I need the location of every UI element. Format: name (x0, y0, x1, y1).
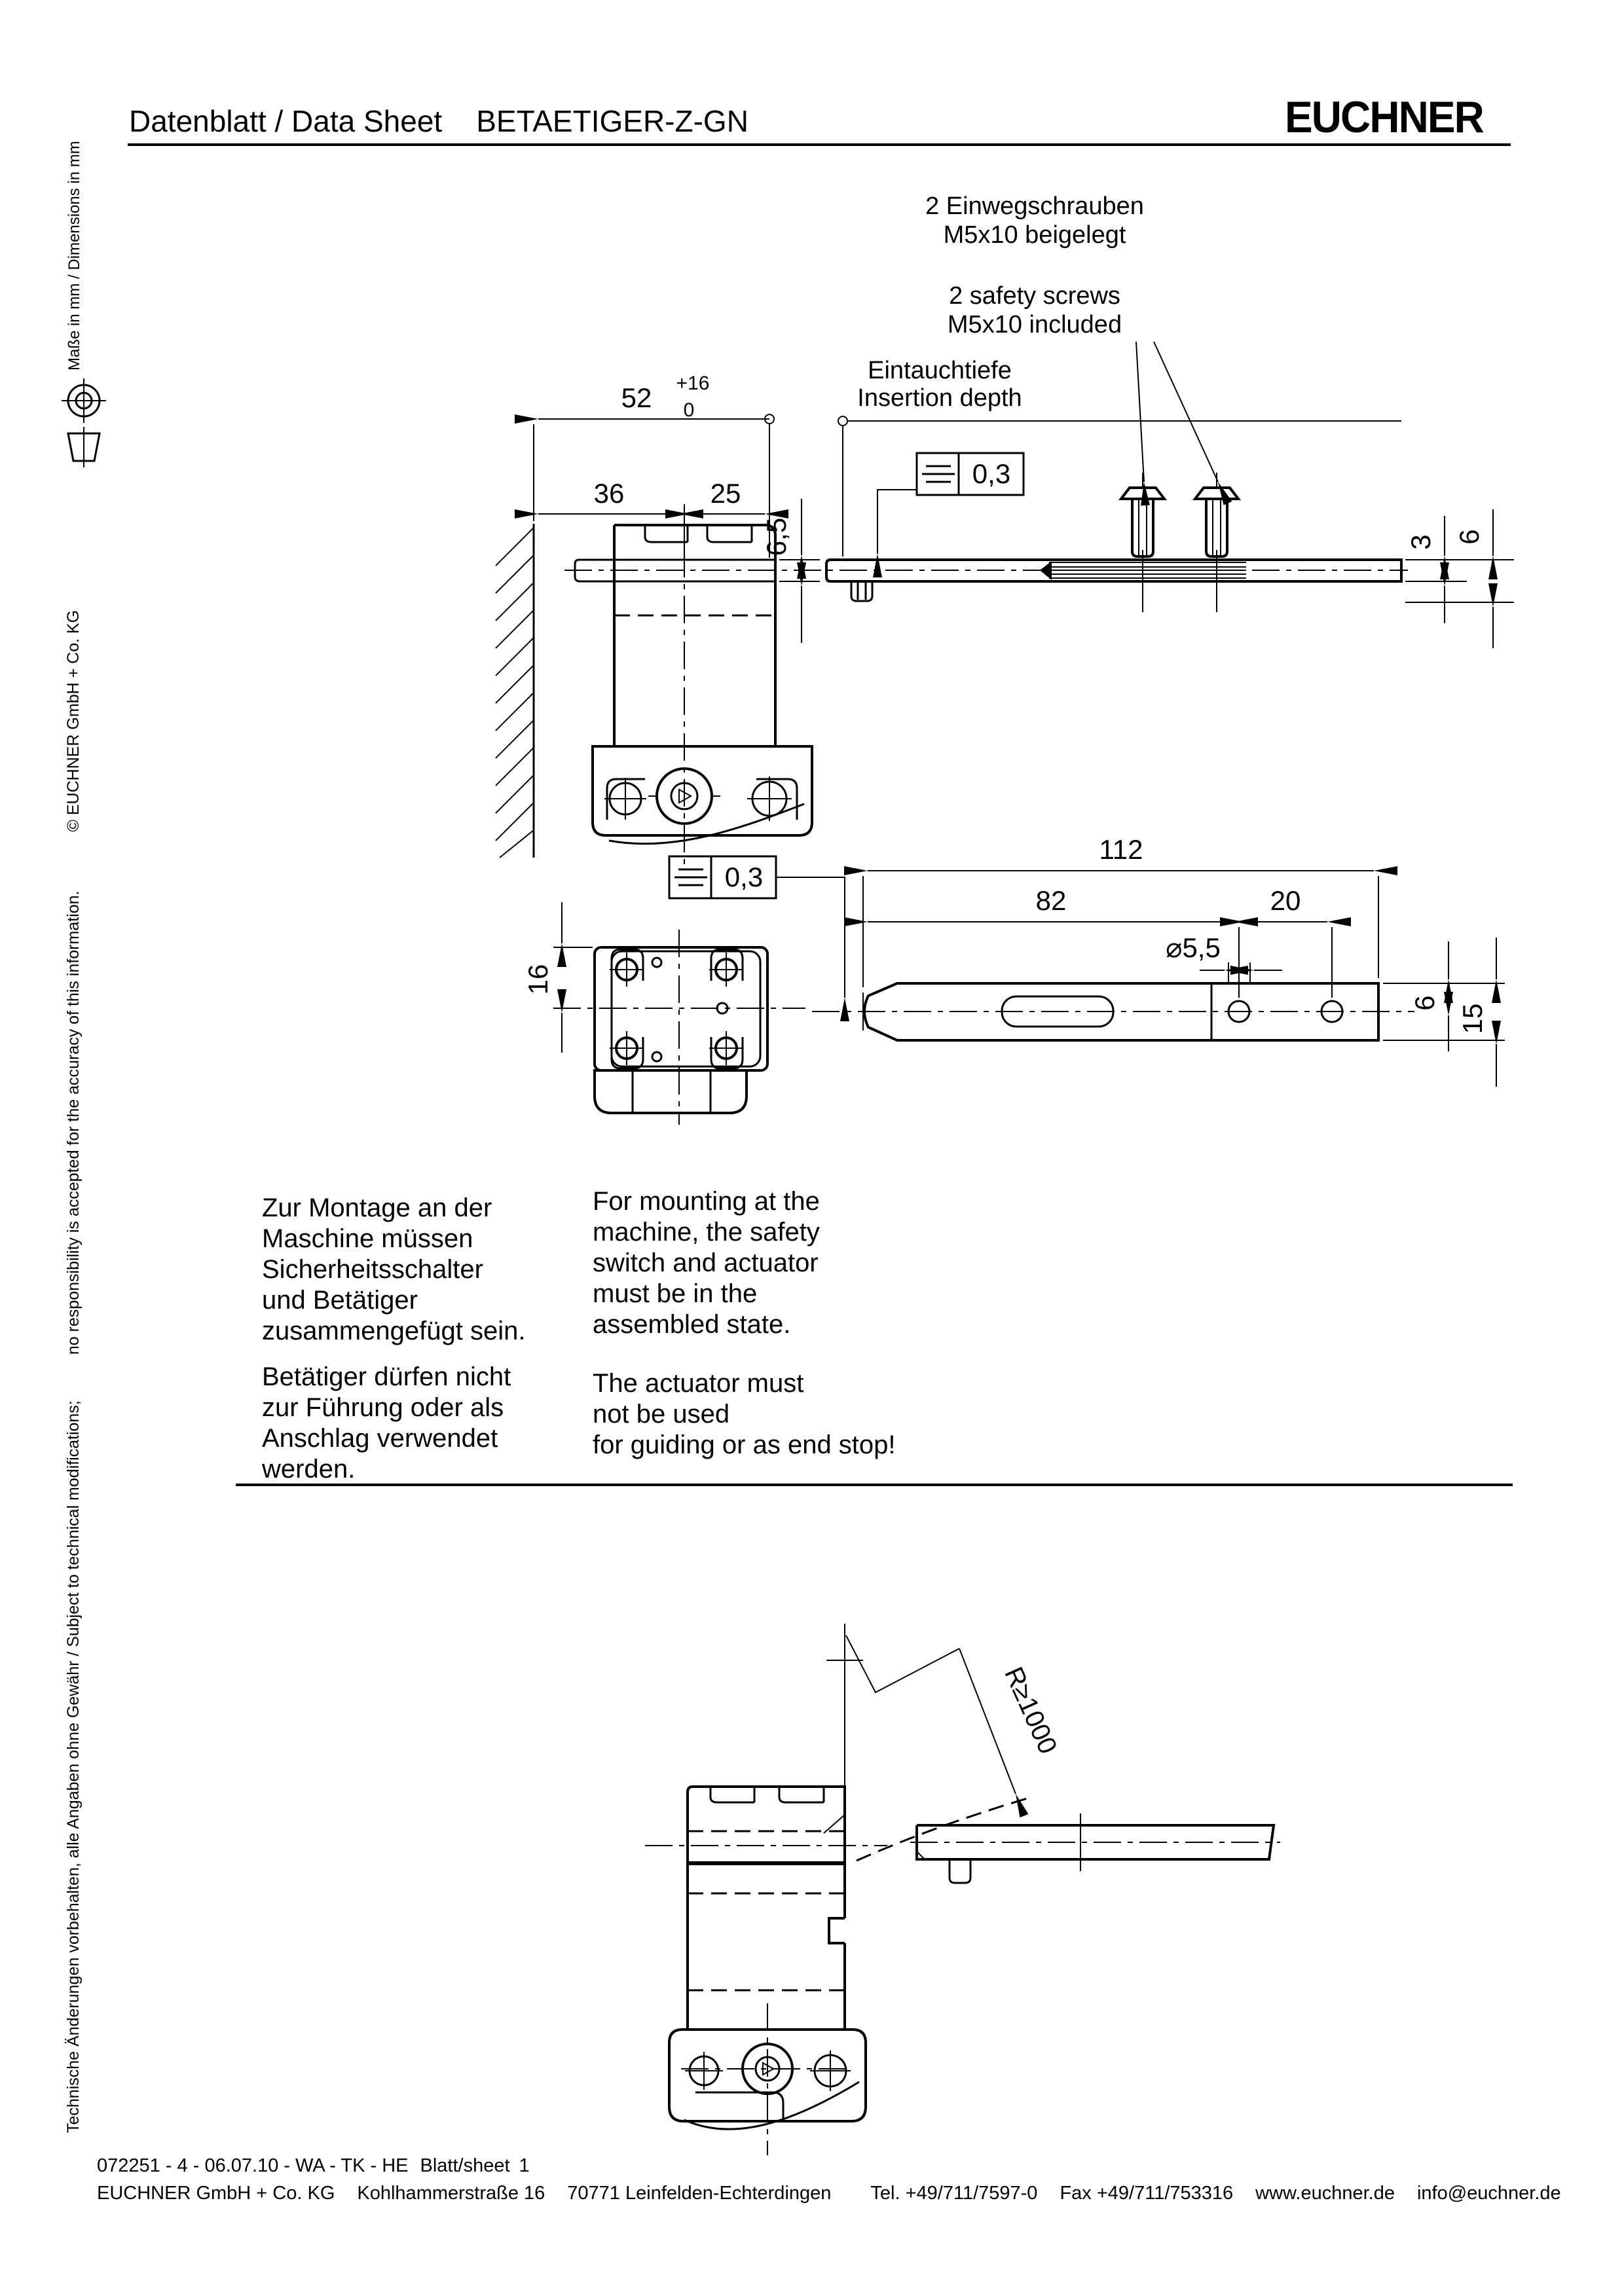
svg-text:6: 6 (1454, 529, 1485, 544)
radius-leader: R≥1000 (846, 1635, 1062, 1794)
svg-text:R≥1000: R≥1000 (999, 1663, 1062, 1758)
svg-text:0: 0 (684, 399, 695, 421)
svg-text:6: 6 (1409, 995, 1440, 1010)
svg-text:20: 20 (1270, 885, 1301, 916)
tolerance-frame-side: 0,3 (877, 453, 1024, 554)
mounting-foot (593, 746, 812, 844)
safety-screw-left (1121, 473, 1164, 556)
radius-view-drawing: R≥1000 (645, 1624, 1280, 2155)
symmetry-symbol-icon (922, 466, 955, 482)
switch-side-view (645, 1624, 887, 2030)
actuator-approach (857, 1798, 1280, 1883)
tolerance-frame-top: 0,3 (669, 856, 845, 998)
svg-text:⌀5,5: ⌀5,5 (1166, 932, 1221, 963)
svg-text:52: 52 (621, 382, 652, 413)
first-angle-projection-icon (62, 378, 106, 467)
actuator-stub (851, 581, 872, 601)
dim-16: 16 (523, 902, 593, 1053)
svg-text:6,5: 6,5 (761, 518, 792, 556)
switch-head-top-view (553, 930, 805, 1125)
top-view-drawing: 0,3 (523, 834, 1505, 1125)
actuator-side-view (826, 550, 1401, 612)
switch-foot (669, 2003, 866, 2155)
safety-screw-right (1195, 473, 1238, 556)
svg-text:16: 16 (523, 964, 553, 995)
slotted-screw (709, 949, 743, 987)
svg-text:25: 25 (710, 478, 741, 509)
svg-text:0,3: 0,3 (725, 862, 763, 892)
wall-hatch (496, 524, 534, 858)
dim-82-20: 82 20 (868, 885, 1332, 998)
technical-drawings: 52 +16 0 36 25 6,5 (0, 0, 1624, 2296)
symmetry-symbol-icon (674, 869, 707, 885)
svg-text:82: 82 (1036, 885, 1067, 916)
svg-text:112: 112 (1099, 834, 1143, 865)
datasheet-page: Datenblatt / Data SheetBETAETIGER-Z-GN E… (0, 0, 1624, 2296)
head-foot (595, 1070, 747, 1113)
svg-text:0,3: 0,3 (972, 458, 1010, 489)
svg-text:36: 36 (594, 478, 625, 509)
insertion-depth-reference (838, 416, 1401, 556)
svg-text:+16: +16 (676, 373, 710, 394)
dim-hole-dia: ⌀5,5 (1166, 932, 1282, 982)
svg-text:3: 3 (1405, 534, 1436, 549)
screw-hole-right (747, 776, 792, 821)
slotted-screw (709, 1031, 743, 1068)
side-view-drawing: 52 +16 0 36 25 6,5 (496, 342, 1514, 871)
dim-52: 52 +16 0 (534, 373, 774, 558)
dim-36-25: 36 25 (538, 478, 765, 562)
actuator-top-view (812, 983, 1414, 1040)
screw-leader-lines (1136, 342, 1218, 482)
dim-3-6: 3 6 (1405, 509, 1514, 648)
svg-text:15: 15 (1457, 1004, 1488, 1034)
screw-hole-left (604, 778, 646, 820)
dim-112: 112 (863, 834, 1378, 987)
